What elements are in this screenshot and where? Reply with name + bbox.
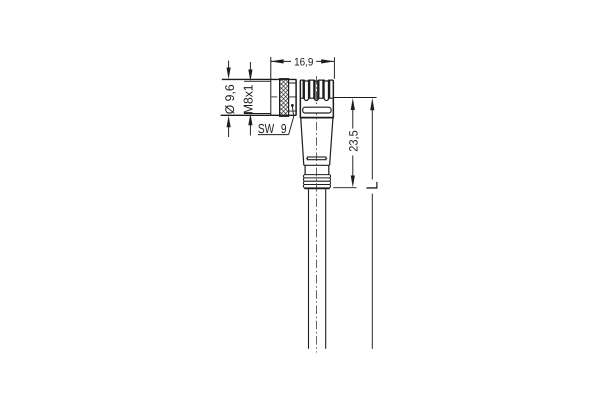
svg-text:Ø 9,6: Ø 9,6 xyxy=(223,84,237,114)
svg-text:M8x1: M8x1 xyxy=(241,84,256,114)
svg-text:9: 9 xyxy=(281,121,287,136)
svg-text:23,5: 23,5 xyxy=(347,130,361,152)
svg-text:16,9: 16,9 xyxy=(294,57,313,69)
svg-text:SW: SW xyxy=(258,121,275,136)
svg-text:L: L xyxy=(365,181,382,190)
